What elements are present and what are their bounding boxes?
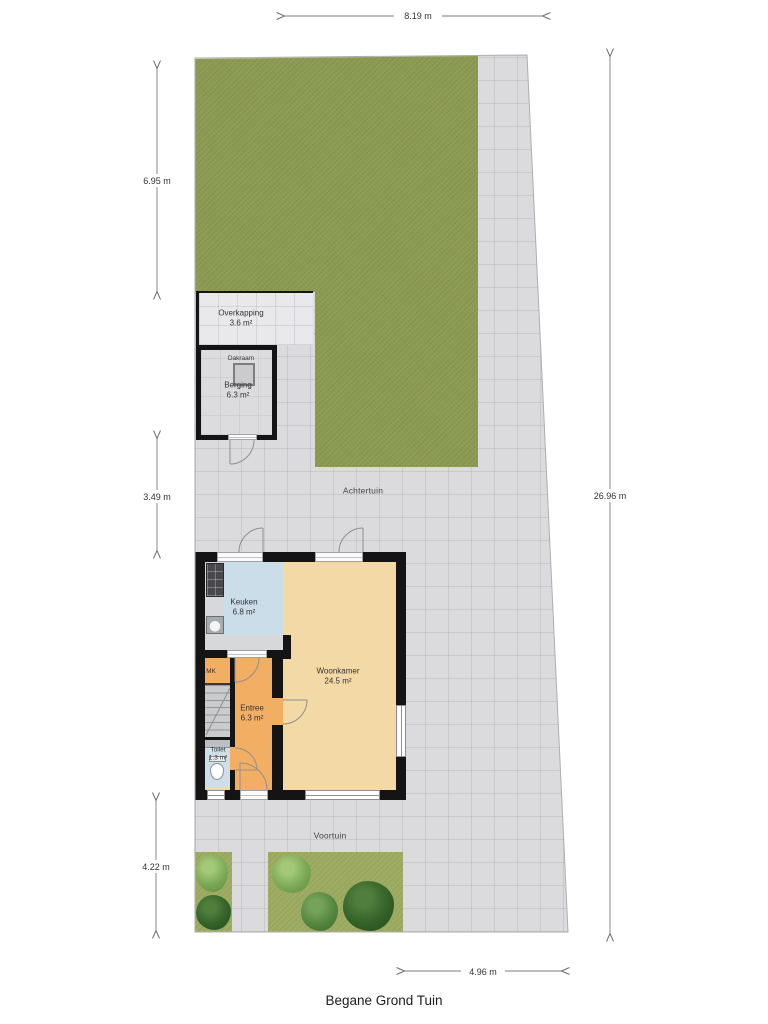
hall-living-wall-lower (272, 725, 283, 790)
dimension-left-lower: 4.22 m (135, 800, 177, 931)
bush-icon (196, 854, 228, 892)
dimension-bottom: 4.96 m (404, 964, 562, 978)
tree-icon (343, 881, 394, 931)
dimension-label: 6.95 m (143, 176, 171, 186)
dimension-left-upper: 6.95 m (136, 68, 178, 292)
floorplan-canvas: Overkapping3.6 m² Dakraam Berging6.3 m² … (0, 0, 768, 1024)
front-door (240, 790, 268, 800)
woonkamer-label: Woonkamer24.5 m² (317, 667, 360, 688)
meterkast-label: MK (206, 668, 216, 676)
keuken-garden-door (217, 552, 263, 562)
woonkamer-front-window (305, 790, 380, 800)
keuken-label: Keuken6.8 m² (230, 598, 257, 619)
toilet-window (207, 790, 225, 800)
woonkamer-garden-door (315, 552, 363, 562)
voortuin-label: Voortuin (314, 830, 347, 841)
kitchen-hall-doorway (227, 650, 267, 658)
overkapping-label: Overkapping3.6 m² (218, 309, 263, 330)
stairs-symbol (205, 685, 230, 737)
dimension-left-middle: 3.49 m (136, 438, 178, 551)
dimension-label: 4.96 m (469, 967, 497, 977)
bush-icon (196, 895, 231, 930)
berging-door-threshold (228, 434, 257, 440)
hall-living-wall-upper (272, 650, 283, 698)
dimension-top: 8.19 m (284, 9, 543, 23)
stove-icon (206, 563, 224, 597)
woonkamer-side-window (396, 705, 406, 757)
berging-label: Berging6.3 m² (224, 381, 252, 402)
kitchen-hall-wall-left (205, 650, 227, 658)
achtertuin-label: Achtertuin (343, 485, 383, 496)
bush-icon (301, 892, 338, 931)
bush-icon (272, 855, 311, 893)
toilet-label: Toilet1.3 m² (209, 747, 227, 764)
hall-living-doorway (272, 698, 283, 725)
dimension-label: 3.49 m (143, 492, 171, 502)
dimension-label: 26.96 m (594, 491, 627, 501)
plan-title: Begane Grond Tuin (0, 993, 768, 1008)
dimension-label: 4.22 m (142, 862, 170, 872)
sink-icon (206, 616, 224, 634)
kitchen-wall-stub (283, 635, 291, 659)
dakraam-label: Dakraam (228, 355, 254, 363)
dimension-label: 8.19 m (404, 11, 432, 21)
dimension-right: 26.96 m (587, 56, 633, 934)
entree-label: Entree6.3 m² (240, 704, 264, 725)
